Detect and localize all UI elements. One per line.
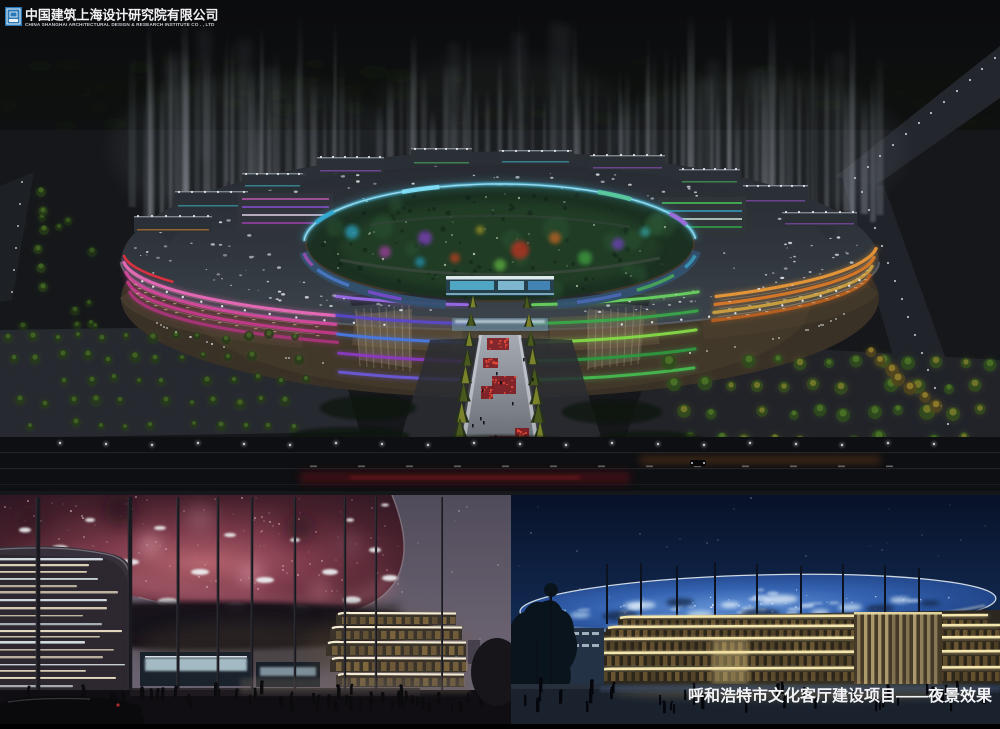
svg-text:中国建筑上海设计研究院有限公司: 中国建筑上海设计研究院有限公司 [25,8,218,23]
svg-text:CHINA SHANGHAI ARCHITECTURAL D: CHINA SHANGHAI ARCHITECTURAL DESIGN & RE… [25,22,215,27]
svg-text:呼和浩特市文化客厅建设项目——夜景效果: 呼和浩特市文化客厅建设项目——夜景效果 [688,686,992,705]
